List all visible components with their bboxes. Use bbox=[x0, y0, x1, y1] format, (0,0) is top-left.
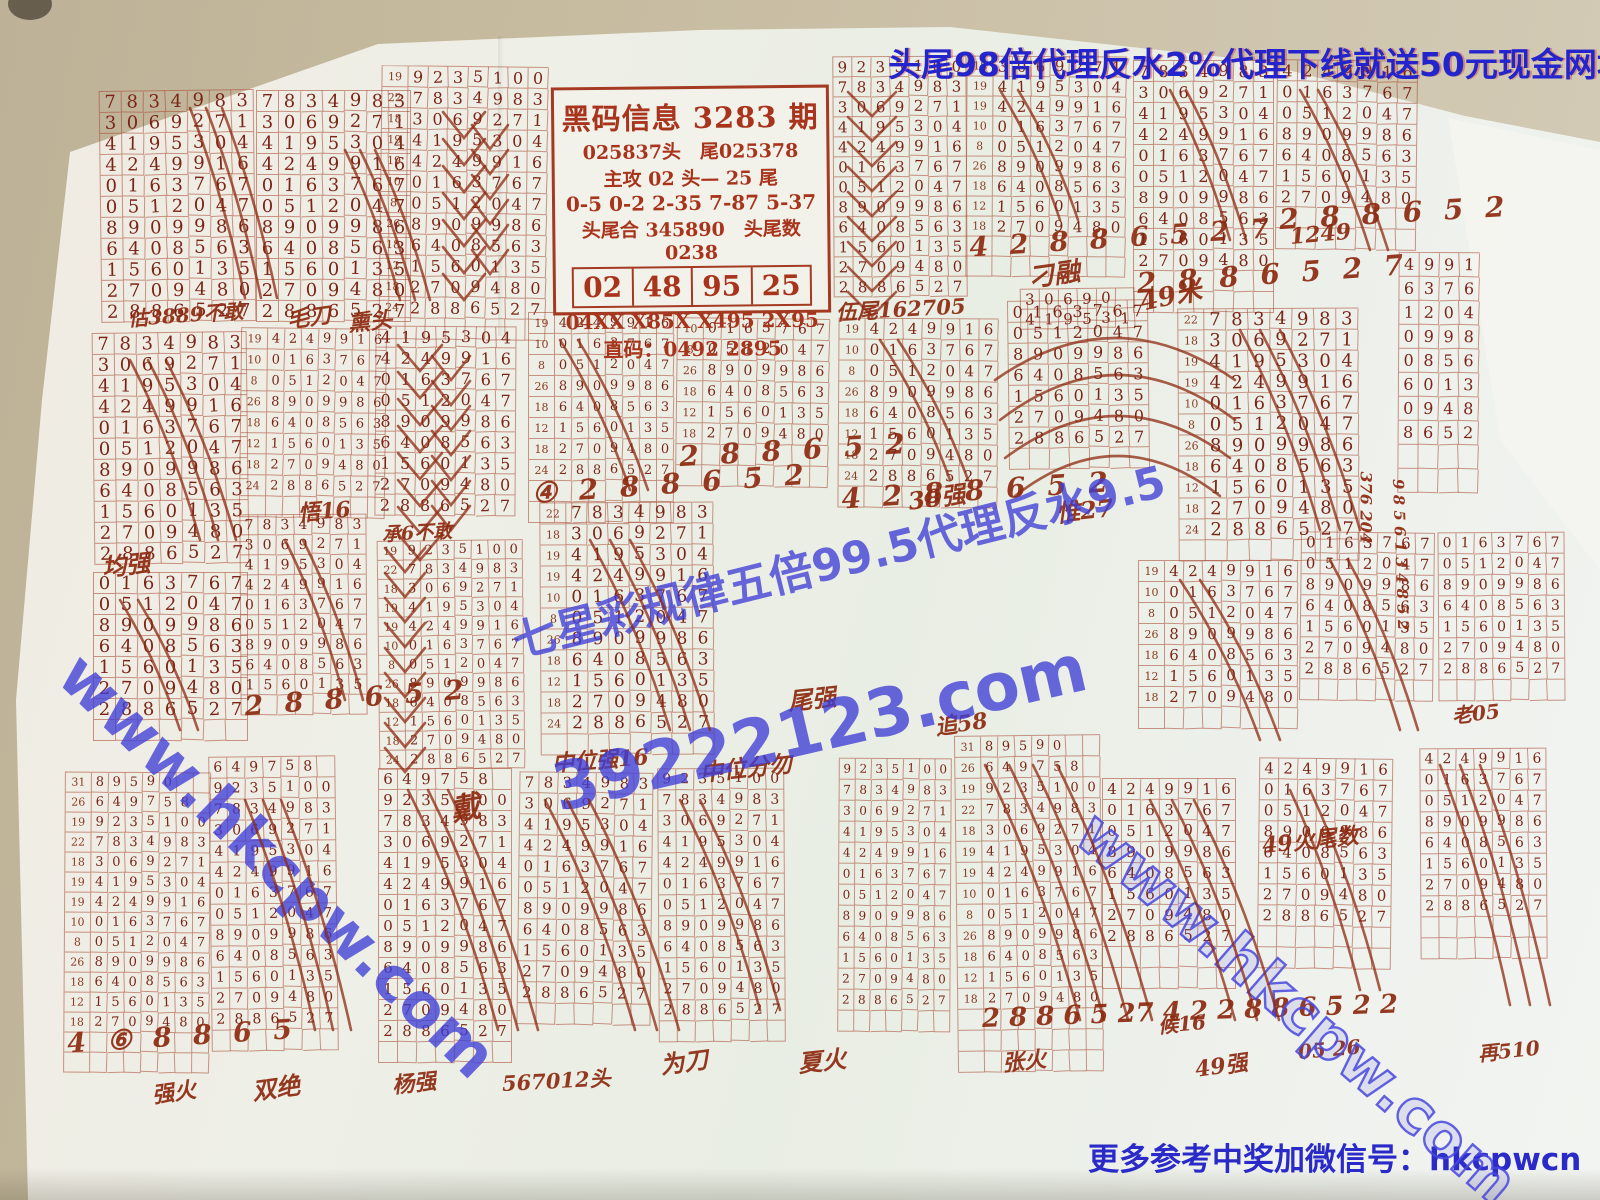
digit-cell: 5 bbox=[1051, 945, 1069, 967]
digit-cell: 2 bbox=[887, 885, 904, 907]
grid-row: 0163767 bbox=[1420, 770, 1546, 792]
digit-cell: 9 bbox=[575, 962, 595, 984]
digit-cell: 4 bbox=[455, 473, 476, 495]
digit-cell: 7 bbox=[566, 503, 587, 524]
digit-cell: 0 bbox=[248, 988, 267, 1010]
digit-cell: 3 bbox=[323, 175, 346, 197]
grid-row: 0512047 bbox=[1134, 166, 1274, 187]
digit-cell: 5 bbox=[593, 982, 613, 1004]
digit-cell: 0 bbox=[983, 883, 1000, 904]
digit-cell bbox=[1258, 947, 1277, 968]
digit-cell: 2 bbox=[1438, 749, 1456, 770]
digit-cell: 0 bbox=[1179, 820, 1199, 842]
digit-cell: 5 bbox=[1439, 349, 1460, 374]
digit-cell: 8 bbox=[575, 920, 595, 942]
digit-cell: 9 bbox=[694, 832, 713, 854]
digit-cell: 0 bbox=[101, 197, 123, 218]
digit-cell: 9 bbox=[1160, 779, 1180, 801]
digit-cell: 0 bbox=[301, 238, 324, 260]
digit-cell bbox=[1418, 469, 1439, 494]
digit-cell: 5 bbox=[1089, 426, 1109, 447]
digit-cell: 9 bbox=[116, 459, 138, 480]
digit-cell: 7 bbox=[1184, 687, 1204, 709]
digit-cell: 9 bbox=[1293, 434, 1316, 456]
row-label-cell: 19 bbox=[66, 813, 92, 833]
digit-cell: 9 bbox=[468, 108, 489, 130]
digit-cell bbox=[158, 1053, 176, 1074]
digit-cell: 0 bbox=[257, 196, 279, 217]
digit-cell: 7 bbox=[1547, 554, 1565, 575]
digit-cell: 4 bbox=[91, 892, 109, 913]
digit-cell: 2 bbox=[518, 982, 537, 1003]
digit-cell: 0 bbox=[189, 194, 211, 215]
digit-cell: 7 bbox=[193, 933, 211, 954]
digit-cell: 5 bbox=[279, 196, 302, 218]
digit-cell: 1 bbox=[212, 968, 230, 989]
digit-cell: 3 bbox=[456, 326, 477, 348]
digit-cell: 7 bbox=[671, 524, 692, 545]
digit-cell: 2 bbox=[1300, 658, 1319, 679]
digit-cell: 5 bbox=[398, 916, 418, 938]
digit-cell: 5 bbox=[855, 885, 872, 907]
digit-cell: 0 bbox=[1456, 812, 1475, 834]
digit-cell: 9 bbox=[279, 217, 302, 239]
row-label-cell: 18 bbox=[380, 234, 406, 255]
digit-cell: 7 bbox=[853, 257, 872, 277]
digit-cell: 1 bbox=[158, 993, 176, 1014]
digit-cell bbox=[1179, 967, 1199, 989]
digit-cell: 1 bbox=[266, 433, 284, 455]
digit-cell: 9 bbox=[1032, 735, 1049, 756]
digit-cell: 7 bbox=[474, 832, 494, 854]
digit-cell: 7 bbox=[982, 799, 999, 820]
digit-cell: 7 bbox=[283, 882, 301, 903]
digit-cell: 8 bbox=[1049, 176, 1069, 197]
digit-cell bbox=[1141, 968, 1161, 990]
digit-cell: 2 bbox=[1226, 372, 1249, 394]
digit-cell: 9 bbox=[1222, 623, 1242, 645]
digit-cell: 6 bbox=[1355, 780, 1375, 801]
number-grid-block: 7834983306927141953044249916016376705120… bbox=[1133, 60, 1274, 313]
digit-cell: 9 bbox=[833, 57, 852, 77]
digit-cell: 0 bbox=[910, 176, 930, 197]
digit-cell: 5 bbox=[1217, 884, 1236, 905]
digit-cell: 9 bbox=[471, 559, 489, 579]
row-label-cell: 24 bbox=[542, 713, 568, 734]
digit-cell: 7 bbox=[313, 594, 332, 615]
digit-cell: 9 bbox=[125, 873, 143, 894]
digit-cell: 5 bbox=[1129, 384, 1149, 405]
digit-cell: 0 bbox=[606, 417, 624, 439]
digit-cell: 0 bbox=[1222, 665, 1242, 687]
digit-cell: 6 bbox=[1165, 645, 1185, 667]
digit-cell: 0 bbox=[493, 790, 512, 811]
digit-cell: 4 bbox=[116, 636, 139, 658]
digit-cell: 6 bbox=[439, 636, 456, 655]
digit-cell: 0 bbox=[456, 389, 477, 411]
digit-cell: 7 bbox=[934, 990, 950, 1011]
digit-cell: 8 bbox=[506, 278, 526, 299]
digit-cell: 8 bbox=[555, 376, 573, 397]
grid-row: 199235100 bbox=[955, 777, 1100, 800]
digit-cell: 8 bbox=[351, 455, 368, 476]
grid-row: 268909986 bbox=[1139, 624, 1298, 645]
digit-cell: 2 bbox=[1353, 906, 1373, 927]
row-label-cell bbox=[1139, 708, 1165, 729]
digit-cell: 2 bbox=[1337, 103, 1358, 125]
digit-cell: 4 bbox=[1320, 595, 1340, 617]
grid-row: 4195304 bbox=[839, 822, 951, 844]
digit-cell: 2 bbox=[676, 769, 694, 790]
digit-cell: 0 bbox=[1134, 145, 1154, 166]
digit-cell: 3 bbox=[634, 774, 653, 795]
digit-cell bbox=[182, 719, 205, 741]
digit-cell: 8 bbox=[1358, 596, 1378, 618]
digit-cell: 7 bbox=[1335, 779, 1355, 801]
grid-row: 8909986 bbox=[1008, 342, 1148, 365]
digit-cell: 8 bbox=[1271, 455, 1294, 477]
digit-cell: 9 bbox=[1475, 812, 1493, 833]
grid-row: 100163767 bbox=[1179, 392, 1359, 414]
digit-cell: 3 bbox=[526, 236, 547, 258]
digit-cell: 0 bbox=[317, 433, 335, 455]
digit-cell bbox=[1475, 917, 1493, 938]
grid-row: 3189590 bbox=[955, 735, 1100, 758]
digit-cell: 1 bbox=[1141, 821, 1161, 843]
digit-cell: 2 bbox=[1154, 124, 1175, 146]
digit-cell: 2 bbox=[673, 713, 694, 734]
digit-cell: 4 bbox=[257, 133, 279, 154]
grid-row: 0512047 bbox=[1008, 321, 1148, 344]
digit-cell: 8 bbox=[141, 972, 159, 993]
digit-cell: 4 bbox=[426, 234, 447, 256]
grid-row: 2886527 bbox=[1421, 896, 1547, 918]
digit-cell: 1 bbox=[279, 175, 302, 197]
grid-row: 6408563 bbox=[834, 217, 967, 238]
digit-cell: 4 bbox=[159, 333, 181, 354]
digit-cell: 4 bbox=[982, 841, 999, 862]
grid-row: 121560135 bbox=[967, 197, 1126, 218]
digit-cell: 0 bbox=[1165, 582, 1185, 604]
digit-cell: 0 bbox=[124, 973, 142, 994]
digit-cell: 8 bbox=[748, 789, 767, 811]
digit-cell: 8 bbox=[258, 515, 276, 535]
grid-row: 6013 bbox=[1399, 373, 1479, 397]
grid-row: 4249916 bbox=[241, 575, 367, 596]
grid-row: 121560135 bbox=[541, 670, 714, 692]
digit-cell: 9 bbox=[436, 874, 456, 896]
grid-row bbox=[517, 1003, 650, 1026]
digit-cell: 0 bbox=[247, 925, 266, 947]
digit-cell: 5 bbox=[486, 235, 507, 257]
digit-cell: 6 bbox=[1203, 666, 1223, 688]
digit-cell: 9 bbox=[840, 759, 856, 780]
digit-cell bbox=[1296, 948, 1316, 969]
digit-cell: 1 bbox=[1234, 124, 1255, 146]
digit-cell: 5 bbox=[1154, 229, 1175, 251]
row-label-cell: 18 bbox=[967, 177, 993, 197]
digit-cell: 8 bbox=[115, 333, 137, 354]
digit-cell: 1 bbox=[259, 595, 277, 615]
row-label-cell: 8 bbox=[541, 608, 567, 629]
grid-row: 183069271 bbox=[382, 108, 548, 131]
digit-cell: 6 bbox=[1279, 624, 1299, 646]
digit-cell: 3 bbox=[456, 635, 473, 654]
digit-cell: 0 bbox=[317, 777, 335, 798]
digit-cell: 1 bbox=[1051, 966, 1069, 988]
digit-cell: 8 bbox=[160, 480, 182, 501]
digit-cell: 8 bbox=[267, 391, 285, 413]
digit-cell: 4 bbox=[144, 154, 167, 176]
digit-cell: 2 bbox=[730, 810, 749, 832]
digit-cell: 1 bbox=[1278, 779, 1298, 801]
digit-cell: 8 bbox=[445, 298, 466, 320]
digit-cell: 1 bbox=[301, 371, 319, 393]
digit-cell: 3 bbox=[417, 811, 437, 833]
digit-cell: 3 bbox=[448, 88, 469, 110]
digit-cell: 8 bbox=[205, 521, 228, 543]
digit-cell: 9 bbox=[323, 217, 346, 239]
digit-cell: 5 bbox=[902, 926, 919, 948]
digit-cell: 6 bbox=[767, 916, 785, 937]
digit-cell: 0 bbox=[446, 235, 467, 257]
digit-cell: 9 bbox=[891, 137, 910, 157]
row-label-cell: 8 bbox=[65, 933, 91, 953]
digit-cell: 8 bbox=[854, 990, 871, 1012]
digit-cell: 6 bbox=[476, 432, 497, 454]
digit-cell: 4 bbox=[182, 677, 205, 699]
grid-row: 199235100 bbox=[66, 813, 211, 834]
digit-cell: 5 bbox=[594, 919, 614, 941]
digit-cell: 1 bbox=[123, 175, 145, 196]
digit-cell: 6 bbox=[507, 673, 524, 692]
digit-cell: 0 bbox=[301, 392, 319, 414]
digit-cell: 8 bbox=[1198, 905, 1218, 927]
grid-row: 2709480 bbox=[376, 474, 516, 496]
number-grid-block: 7834983306927141953044249916016376705120… bbox=[99, 89, 257, 323]
digit-cell: 4 bbox=[1184, 645, 1204, 667]
row-label-cell: 18 bbox=[240, 454, 266, 475]
digit-cell: 1 bbox=[1399, 301, 1419, 325]
row-label-cell: 18 bbox=[380, 732, 406, 751]
digit-cell: 3 bbox=[713, 874, 731, 895]
digit-cell: 6 bbox=[1249, 477, 1271, 498]
digit-cell: 8 bbox=[713, 937, 731, 958]
number-grid-block: 1942499161001637678051204726890998618640… bbox=[239, 327, 387, 519]
digit-cell: 5 bbox=[1154, 166, 1175, 188]
digit-cell: 0 bbox=[440, 731, 457, 750]
digit-cell: 7 bbox=[176, 853, 193, 873]
digit-cell: 2 bbox=[1419, 301, 1440, 326]
digit-cell: 2 bbox=[567, 713, 588, 734]
digit-cell: 4 bbox=[1334, 884, 1354, 906]
digit-cell: 0 bbox=[693, 691, 714, 712]
digit-cell: 0 bbox=[1160, 884, 1180, 906]
row-label-cell: 19 bbox=[242, 328, 268, 349]
grid-row: 6408563 bbox=[1277, 144, 1417, 167]
digit-cell: 6 bbox=[1397, 125, 1417, 146]
digit-cell: 0 bbox=[921, 423, 941, 445]
digit-cell: 6 bbox=[1108, 300, 1129, 322]
row-label-cell: 18 bbox=[1139, 687, 1165, 708]
digit-cell: 1 bbox=[190, 257, 212, 278]
digit-cell: 6 bbox=[125, 853, 143, 874]
digit-cell: 8 bbox=[929, 256, 949, 277]
digit-cell: 3 bbox=[160, 417, 182, 438]
digit-cell: 5 bbox=[537, 940, 557, 962]
digit-cell: 1 bbox=[587, 587, 609, 609]
digit-cell: 5 bbox=[284, 1008, 302, 1029]
digit-cell: 2 bbox=[1258, 905, 1277, 926]
digit-cell: 9 bbox=[379, 790, 398, 811]
digit-cell: 6 bbox=[1457, 854, 1476, 876]
digit-cell: 8 bbox=[423, 750, 441, 770]
digit-cell: 9 bbox=[855, 906, 872, 928]
grid-row: 1560135 bbox=[94, 657, 248, 678]
digit-cell: 6 bbox=[1277, 144, 1297, 165]
digit-cell: 6 bbox=[1085, 924, 1102, 945]
digit-cell: 9 bbox=[187, 89, 209, 110]
digit-cell: 8 bbox=[295, 655, 313, 675]
grid-row: 0998 bbox=[1399, 325, 1479, 349]
digit-cell: 6 bbox=[276, 535, 295, 556]
digit-cell: 2 bbox=[102, 302, 124, 323]
digit-cell: 2 bbox=[853, 137, 872, 157]
row-label-cell: 19 bbox=[540, 545, 566, 566]
row-label-cell: 18 bbox=[958, 989, 984, 1010]
digit-cell: 9 bbox=[558, 815, 578, 836]
grid-row: 0512047 bbox=[1421, 791, 1547, 813]
digit-cell: 4 bbox=[1033, 798, 1050, 819]
row-label-cell: 8 bbox=[839, 361, 865, 382]
digit-cell: 0 bbox=[871, 906, 888, 928]
digit-cell: 2 bbox=[428, 66, 449, 88]
digit-cell: 9 bbox=[1033, 819, 1050, 840]
digit-cell: 1 bbox=[623, 418, 641, 440]
digit-cell: 5 bbox=[436, 853, 456, 875]
digit-cell: 2 bbox=[398, 790, 418, 812]
digit-cell bbox=[1398, 445, 1418, 469]
row-label-cell bbox=[958, 1010, 984, 1031]
digit-cell: 6 bbox=[490, 692, 507, 711]
digit-cell: 2 bbox=[1474, 791, 1492, 812]
digit-cell: 5 bbox=[941, 403, 961, 425]
digit-cell: 0 bbox=[266, 967, 284, 988]
digit-cell: 0 bbox=[839, 885, 855, 906]
digit-cell: 1 bbox=[1214, 228, 1235, 250]
digit-cell: 3 bbox=[125, 833, 143, 854]
digit-cell: 0 bbox=[496, 474, 516, 495]
digit-cell: 6 bbox=[919, 864, 936, 886]
digit-cell: 6 bbox=[1528, 595, 1547, 617]
grid-row: 4249916 bbox=[376, 348, 516, 370]
digit-cell: 4 bbox=[1420, 749, 1438, 770]
grid-row: 4195304 bbox=[1134, 103, 1274, 124]
digit-cell: 3 bbox=[1198, 884, 1218, 906]
direct-code-line: 直码：0492 2895 bbox=[562, 332, 822, 364]
digit-cell: 4 bbox=[331, 614, 350, 635]
digit-cell bbox=[1457, 938, 1476, 960]
digit-cell: 8 bbox=[695, 1000, 714, 1022]
digit-cell: 2 bbox=[406, 731, 423, 750]
digit-cell: 6 bbox=[465, 297, 486, 319]
digit-cell bbox=[838, 1011, 854, 1032]
digit-cell: 5 bbox=[854, 948, 871, 970]
grid-row: 186408563 bbox=[541, 649, 714, 671]
digit-cell: 1 bbox=[257, 259, 279, 280]
digit-cell: 6 bbox=[960, 340, 979, 361]
row-label-cell: 26 bbox=[66, 793, 92, 813]
digit-cell: 8 bbox=[1141, 926, 1161, 948]
digit-cell: 7 bbox=[93, 334, 115, 355]
digit-cell: 4 bbox=[1254, 103, 1274, 124]
digit-cell: 8 bbox=[176, 833, 193, 853]
digit-cell: 2 bbox=[312, 534, 331, 555]
grid-row: 0163767 bbox=[211, 882, 337, 905]
grid-row: 7834983 bbox=[100, 90, 254, 113]
grid-row: 3069271 bbox=[658, 811, 784, 833]
digit-cell: 2 bbox=[838, 990, 854, 1011]
digit-cell: 4 bbox=[1260, 603, 1279, 624]
digit-cell: 6 bbox=[633, 900, 652, 921]
digit-cell: 2 bbox=[228, 862, 246, 883]
digit-cell: 9 bbox=[941, 319, 961, 341]
digit-cell: 7 bbox=[493, 916, 512, 937]
grid-row: 4249916 bbox=[1260, 758, 1393, 781]
grid-row: 8909986 bbox=[519, 898, 652, 921]
digit-cell: 7 bbox=[693, 712, 714, 733]
digit-cell: 0 bbox=[1292, 413, 1315, 435]
grid-row: 194249916 bbox=[956, 861, 1101, 884]
grid-row: 4249916 bbox=[1103, 779, 1236, 800]
digit-cell: 6 bbox=[506, 236, 526, 257]
digit-cell: 1 bbox=[557, 878, 577, 899]
grid-row: 80512047 bbox=[1179, 413, 1359, 435]
digit-cell: 1 bbox=[247, 904, 266, 926]
digit-cell: 4 bbox=[279, 238, 302, 260]
number-grid-block: 4249916016376705120478909986640856315601… bbox=[1102, 778, 1236, 989]
digit-cell: 5 bbox=[1529, 854, 1547, 875]
digit-cell: 6 bbox=[558, 794, 578, 815]
digit-cell: 7 bbox=[537, 961, 557, 983]
digit-cell: 8 bbox=[1260, 687, 1279, 708]
grid-row: 186408563 bbox=[65, 973, 210, 994]
digit-cell: 6 bbox=[233, 216, 255, 237]
grid-row: 9235100 bbox=[379, 790, 512, 811]
digit-cell: 6 bbox=[1217, 779, 1236, 800]
grid-row: 4249916 bbox=[93, 395, 247, 418]
digit-cell bbox=[1372, 949, 1391, 970]
digit-cell: 1 bbox=[229, 883, 247, 904]
digit-cell: 3 bbox=[210, 821, 228, 842]
digit-cell: 2 bbox=[379, 1000, 398, 1021]
digit-cell: 4 bbox=[1134, 103, 1154, 124]
digit-cell: 5 bbox=[159, 793, 177, 814]
digit-cell: 7 bbox=[979, 361, 999, 383]
digit-cell: 1 bbox=[1474, 554, 1493, 576]
digit-cell: 1 bbox=[115, 375, 137, 396]
digit-cell bbox=[731, 1020, 750, 1042]
digit-cell bbox=[1438, 445, 1459, 470]
grid-row: 121560135 bbox=[380, 711, 525, 732]
digit-cell: 6 bbox=[406, 234, 427, 256]
digit-cell: 6 bbox=[138, 501, 161, 523]
grid-row: 80512047 bbox=[1139, 603, 1298, 624]
digit-cell: 4 bbox=[284, 413, 302, 434]
digit-cell: 9 bbox=[284, 392, 302, 413]
digit-cell: 2 bbox=[455, 831, 475, 853]
grid-row: 194249916 bbox=[967, 97, 1126, 118]
